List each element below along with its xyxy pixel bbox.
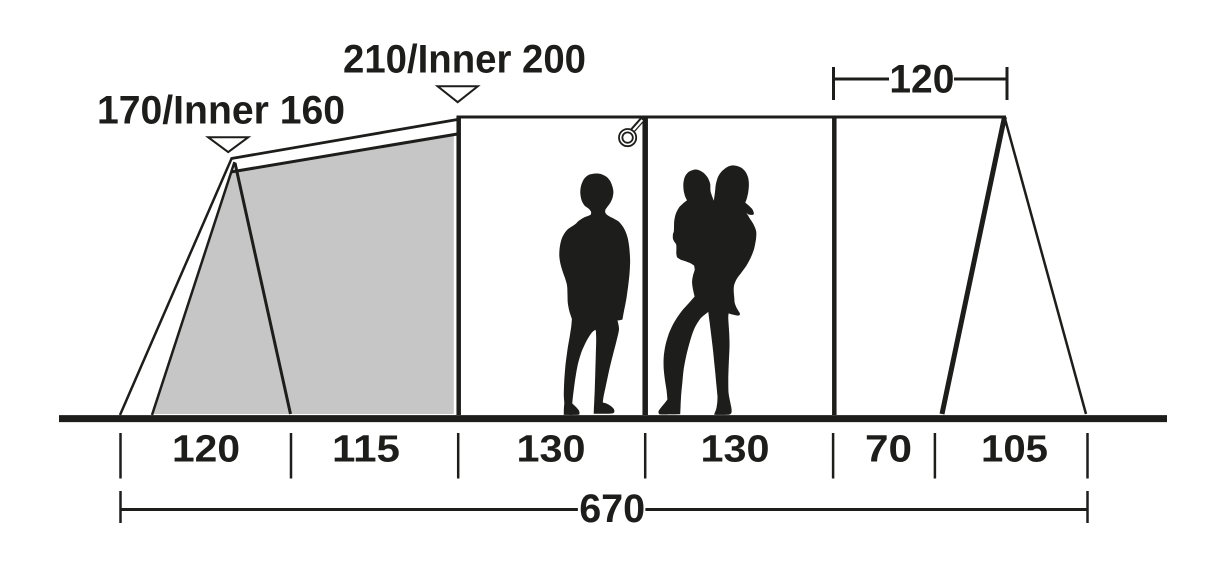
svg-text:130: 130 [517,428,586,470]
svg-text:70: 70 [865,428,912,470]
svg-text:120: 120 [889,57,954,101]
svg-text:210/Inner 200: 210/Inner 200 [343,38,586,82]
svg-text:115: 115 [332,428,400,470]
svg-text:170/Inner 160: 170/Inner 160 [97,89,345,133]
svg-text:130: 130 [701,428,770,470]
svg-text:120: 120 [172,428,240,470]
svg-text:105: 105 [981,428,1048,470]
svg-text:670: 670 [579,487,645,531]
